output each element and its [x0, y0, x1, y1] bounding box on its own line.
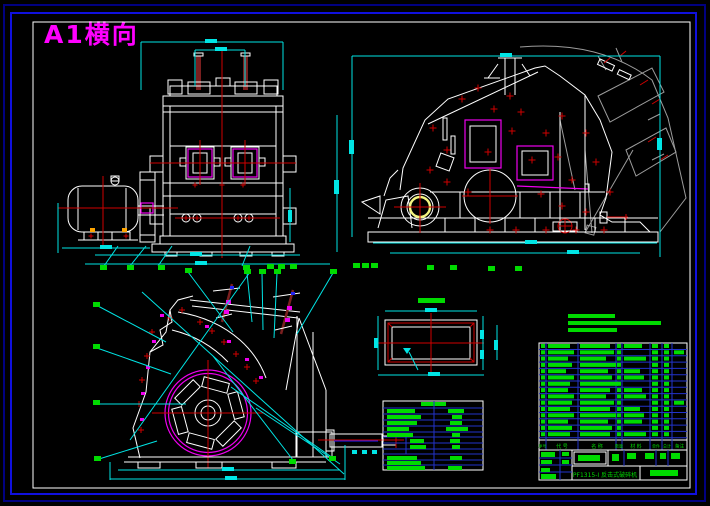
bom-header-qty: 数量 [615, 443, 623, 449]
rotor [152, 360, 264, 468]
front-view [58, 42, 337, 266]
plate-detail-view [378, 298, 497, 375]
drawing-title: PF1315-Ⅰ 反击式破碎机 [573, 471, 637, 479]
cad-drawing: 序号 代 号 名 称 数量 材 料 单件 总计 备注 [0, 0, 710, 506]
side-dimensions [352, 56, 660, 257]
title-block: PF1315-Ⅰ 反击式破碎机 [539, 450, 687, 480]
cad-canvas: A1横向 [0, 0, 710, 506]
side-view [352, 46, 686, 257]
bom-header-remark: 备注 [675, 443, 684, 450]
bom-header-code: 代 号 [556, 443, 568, 450]
bom-header-total-weight: 总计 [663, 443, 671, 449]
bom-table: 序号 代 号 名 称 数量 材 料 单件 总计 备注 [539, 343, 688, 450]
bom-header-name: 名 称 [591, 443, 603, 450]
section-view [97, 272, 404, 480]
bom-header-unit-weight: 单件 [652, 443, 660, 449]
notes-text-lines [568, 314, 661, 332]
tech-table [383, 401, 483, 470]
bom-header-row: 序号 代 号 名 称 数量 材 料 单件 总计 备注 [539, 443, 685, 451]
bom-header-seq: 序号 [539, 443, 547, 449]
liner-bolt-centers [136, 307, 259, 433]
bom-header-material: 材 料 [630, 443, 642, 450]
